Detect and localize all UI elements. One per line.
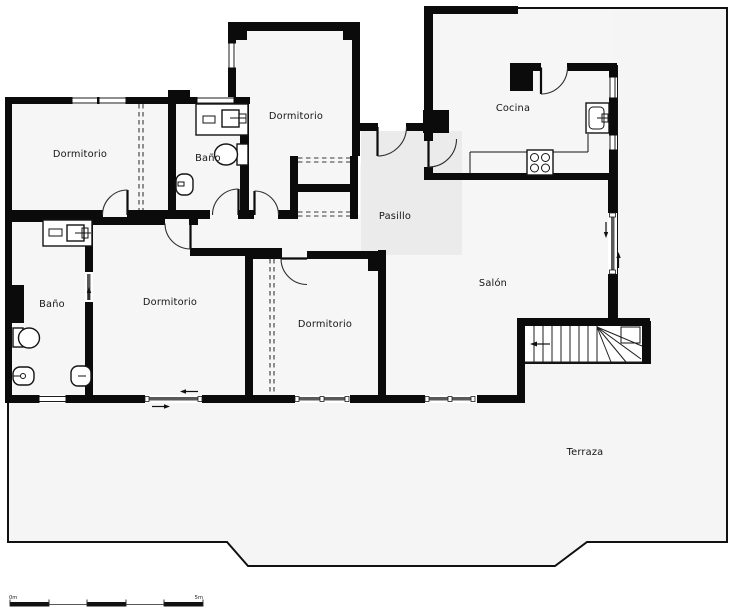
sliding-door bbox=[85, 272, 93, 302]
room-label-dormitorio-n: Dormitorio bbox=[269, 111, 323, 122]
scale-bar: 0m 5m bbox=[9, 595, 203, 607]
bidet-symbol bbox=[13, 367, 34, 385]
window bbox=[425, 395, 477, 403]
bidet-symbol bbox=[176, 174, 193, 195]
window bbox=[70, 97, 128, 104]
room-label-terraza: Terraza bbox=[566, 447, 604, 458]
window bbox=[609, 133, 617, 152]
window bbox=[195, 97, 236, 104]
scale-end-label: 5m bbox=[195, 595, 203, 601]
room-label-pasillo: Pasillo bbox=[379, 211, 411, 222]
scale-start-label: 0m bbox=[9, 595, 17, 601]
stove-symbol bbox=[527, 150, 553, 175]
room-label-dormitorio-sw: Dormitorio bbox=[143, 297, 197, 308]
floor-plan-svg: Dormitorio Baño Dormitorio Cocina Pasill… bbox=[0, 0, 730, 616]
room-label-bano-top: Baño bbox=[195, 153, 221, 164]
window bbox=[609, 75, 617, 100]
stairs bbox=[525, 326, 642, 362]
room-label-bano-w: Baño bbox=[39, 299, 65, 310]
bidet-symbol bbox=[71, 366, 91, 386]
room-label-dormitorio-s: Dormitorio bbox=[298, 319, 352, 330]
room-label-salon: Salón bbox=[479, 277, 507, 289]
sink-vanity-symbol bbox=[196, 104, 248, 135]
sink-vanity-symbol bbox=[43, 220, 92, 246]
toilet-symbol bbox=[13, 328, 40, 348]
hallway-highlight bbox=[361, 131, 462, 255]
floor-plan: Dormitorio Baño Dormitorio Cocina Pasill… bbox=[0, 0, 730, 616]
kitchen-sink-symbol bbox=[586, 103, 609, 133]
room-label-dormitorio-nw: Dormitorio bbox=[53, 149, 107, 160]
window bbox=[37, 395, 68, 403]
room-label-cocina: Cocina bbox=[496, 103, 530, 114]
window bbox=[228, 41, 236, 70]
window bbox=[295, 395, 350, 403]
